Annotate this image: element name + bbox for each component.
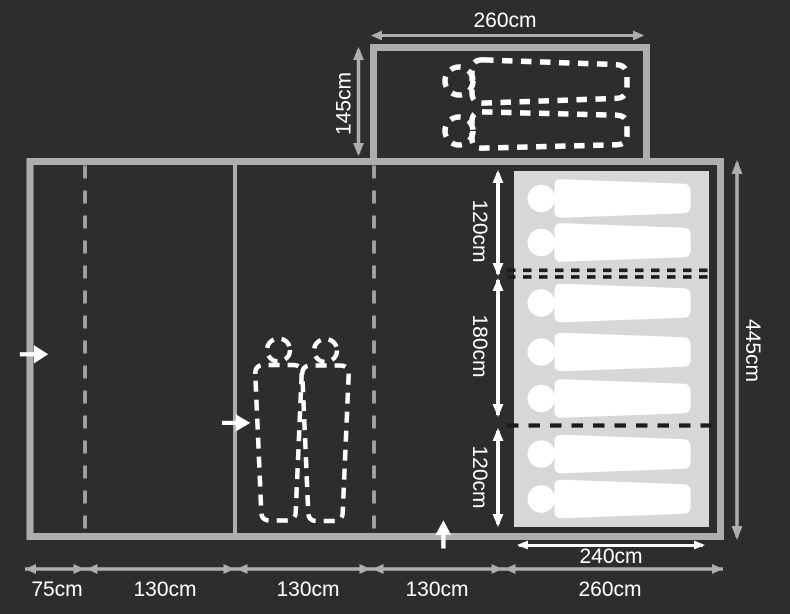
svg-text:145cm: 145cm (333, 72, 356, 135)
svg-text:120cm: 120cm (468, 445, 491, 508)
svg-text:75cm: 75cm (31, 578, 82, 601)
svg-text:260cm: 260cm (473, 9, 536, 32)
svg-text:120cm: 120cm (468, 199, 491, 262)
svg-text:260cm: 260cm (578, 578, 641, 601)
svg-text:240cm: 240cm (579, 545, 642, 568)
svg-text:445cm: 445cm (741, 319, 764, 382)
svg-text:130cm: 130cm (133, 578, 196, 601)
svg-text:180cm: 180cm (468, 314, 491, 377)
svg-text:130cm: 130cm (405, 578, 468, 601)
svg-text:130cm: 130cm (276, 578, 339, 601)
